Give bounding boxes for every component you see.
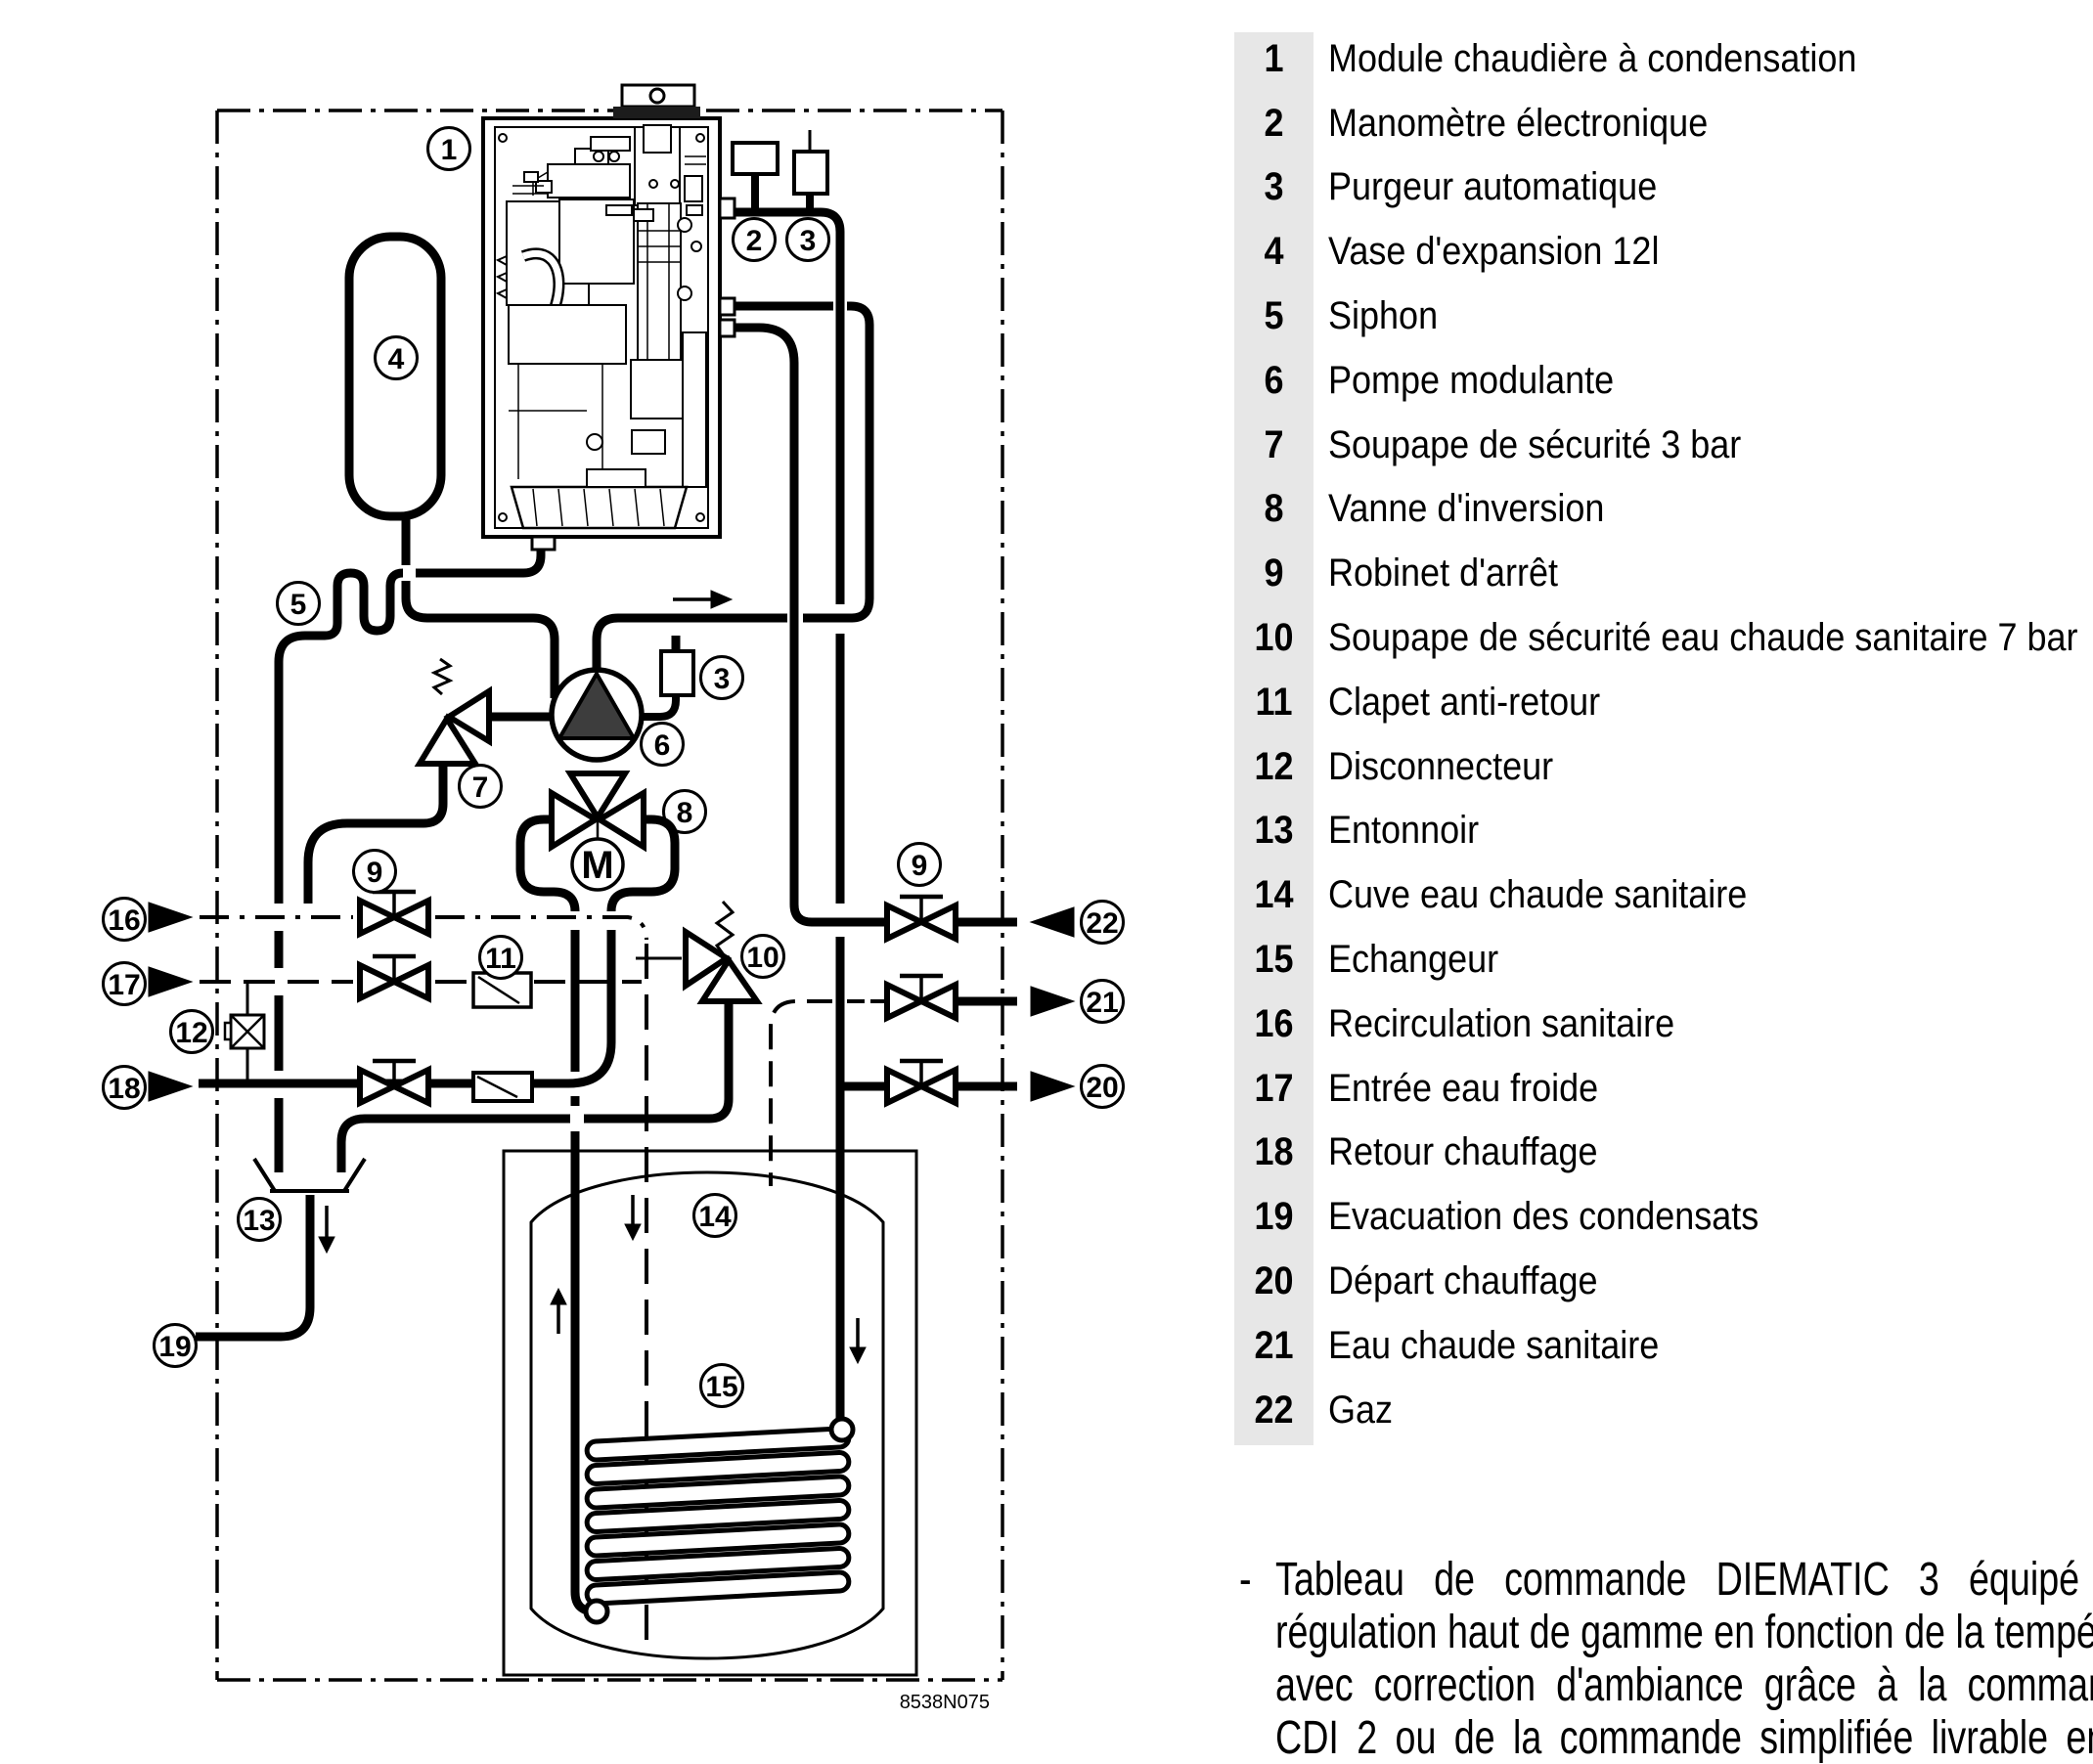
svg-text:21: 21 bbox=[1086, 987, 1118, 1019]
svg-text:1: 1 bbox=[441, 134, 458, 166]
svg-text:4: 4 bbox=[388, 343, 405, 375]
svg-text:11: 11 bbox=[485, 943, 516, 975]
svg-text:13: 13 bbox=[243, 1205, 275, 1237]
svg-text:18: 18 bbox=[108, 1073, 140, 1105]
svg-text:7: 7 bbox=[472, 772, 489, 804]
svg-text:M: M bbox=[581, 844, 613, 887]
svg-text:12: 12 bbox=[175, 1017, 207, 1049]
svg-text:2: 2 bbox=[746, 225, 763, 257]
svg-text:15: 15 bbox=[705, 1371, 737, 1403]
svg-text:3: 3 bbox=[800, 225, 817, 257]
svg-text:6: 6 bbox=[654, 729, 671, 762]
svg-text:16: 16 bbox=[108, 904, 140, 937]
svg-text:20: 20 bbox=[1086, 1072, 1118, 1104]
svg-text:14: 14 bbox=[698, 1201, 732, 1233]
svg-text:9: 9 bbox=[367, 857, 383, 889]
svg-text:3: 3 bbox=[714, 663, 731, 695]
svg-text:5: 5 bbox=[290, 589, 307, 621]
svg-text:8538N075: 8538N075 bbox=[900, 1692, 990, 1713]
svg-text:22: 22 bbox=[1086, 907, 1118, 940]
svg-text:10: 10 bbox=[746, 942, 779, 974]
svg-text:19: 19 bbox=[158, 1331, 191, 1363]
svg-text:17: 17 bbox=[108, 969, 140, 1001]
svg-text:8: 8 bbox=[677, 797, 693, 829]
svg-text:9: 9 bbox=[912, 850, 928, 882]
